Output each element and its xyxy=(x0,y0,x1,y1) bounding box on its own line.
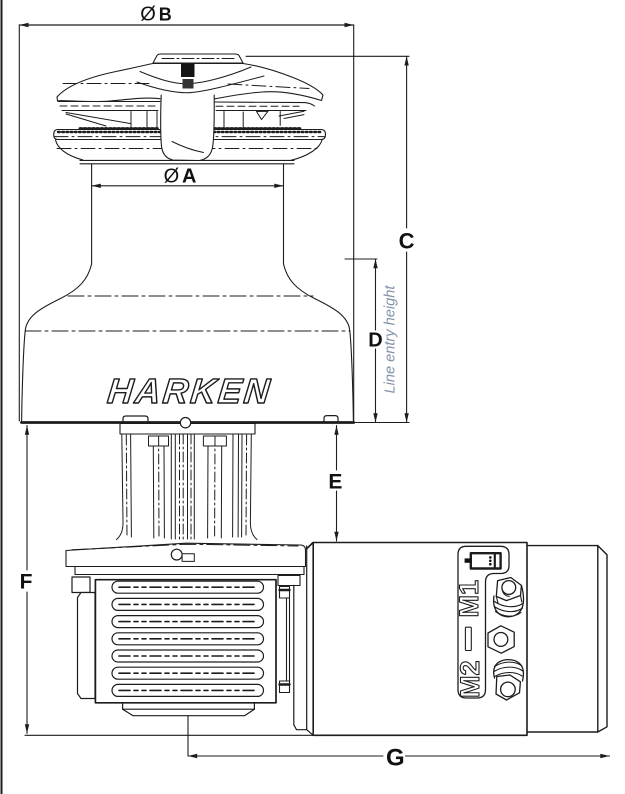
svg-text:Ø: Ø xyxy=(164,165,180,187)
svg-text:F: F xyxy=(20,571,33,594)
svg-text:M2: M2 xyxy=(455,660,485,698)
svg-text:E: E xyxy=(328,470,342,493)
svg-text:B: B xyxy=(159,4,172,24)
svg-text:HARKEN: HARKEN xyxy=(106,372,274,411)
svg-text:G: G xyxy=(386,745,405,772)
svg-text:Line entry height: Line entry height xyxy=(383,285,399,394)
svg-text:D: D xyxy=(368,330,382,352)
svg-text:M1: M1 xyxy=(454,580,484,618)
svg-text:A: A xyxy=(182,165,196,187)
svg-text:Ø: Ø xyxy=(140,3,156,25)
svg-text:C: C xyxy=(399,229,415,254)
